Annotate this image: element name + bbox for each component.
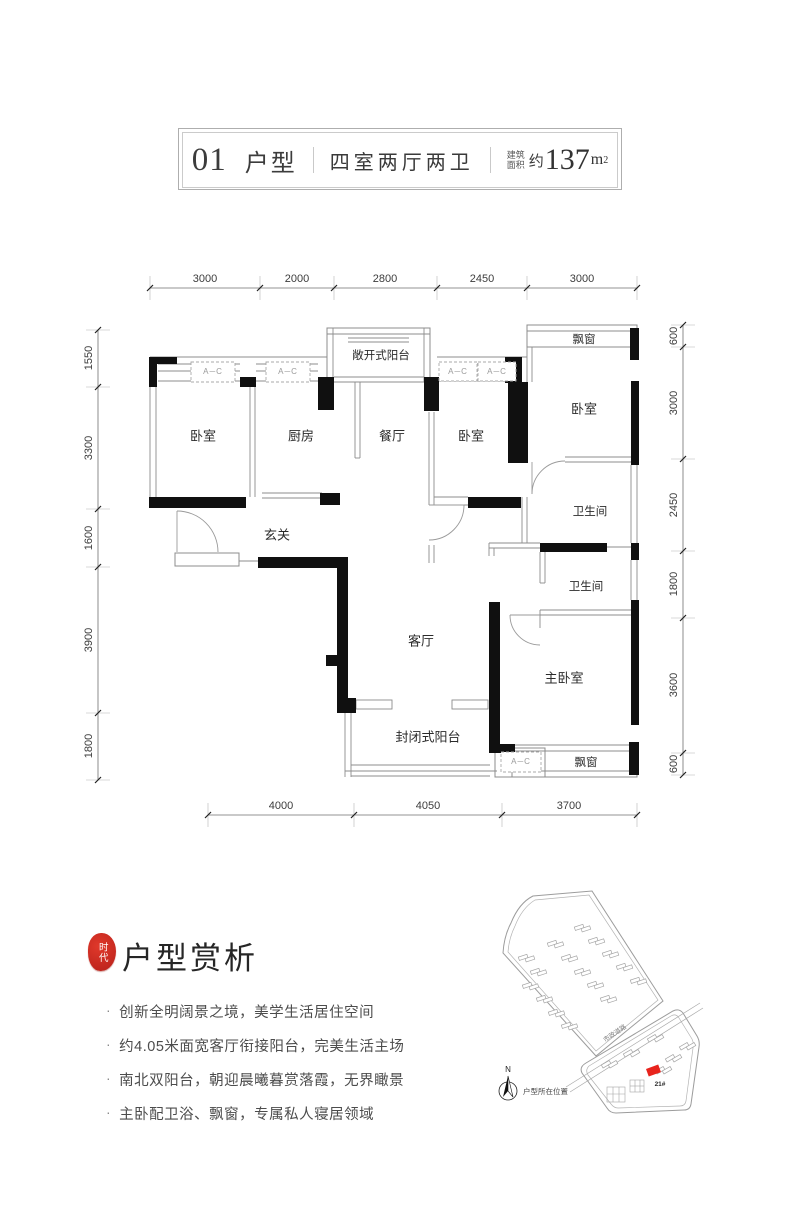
analysis-title: 户型赏析 [122, 933, 258, 978]
label-bay-window-bottom: 飘窗 [575, 755, 598, 769]
dim-top-2: 2000 [285, 273, 309, 285]
dim-bottom-3: 3700 [557, 800, 581, 812]
room-label-bedroom-2: 卧室 [458, 428, 484, 443]
room-label-living: 客厅 [408, 633, 434, 648]
building-footprint [588, 936, 604, 947]
site-map: 市政道路 21# N 户型所在位置 [478, 878, 722, 1128]
area-label: 建筑 面积 [507, 150, 525, 171]
bullet-dot: · [106, 1035, 111, 1053]
unit-label: 户型 [245, 143, 297, 178]
ac-label: A─C [511, 757, 531, 766]
dim-bottom-2: 4050 [416, 800, 440, 812]
building-footprint [623, 1046, 639, 1060]
building-footprint [536, 994, 552, 1005]
title-divider [490, 147, 491, 173]
area-label-line2: 面积 [507, 160, 525, 170]
dim-left-2: 3300 [83, 436, 95, 460]
layout-type: 四室两厅两卫 [330, 146, 474, 175]
title-inner: 01 户型 四室两厅两卫 建筑 面积 约 137 m 2 [182, 132, 618, 188]
building-footprint [665, 1051, 681, 1065]
dim-left-4: 3900 [83, 628, 95, 652]
room-label-bath-2: 卫生间 [569, 579, 604, 593]
analysis-bullets: · 创新全明阔景之境，美学生活居住空间 · 约4.05米面宽客厅衔接阳台，完美生… [106, 1001, 486, 1137]
ac-label: A─C [278, 367, 298, 376]
bullet-dot: · [106, 1069, 111, 1087]
compass-icon: N 户型所在位置 [499, 1065, 568, 1100]
dim-right-1: 600 [668, 327, 680, 345]
building-footprint [518, 953, 534, 964]
dim-right-4: 1800 [668, 572, 680, 596]
dim-left-5: 1800 [83, 734, 95, 758]
bullet-item: · 南北双阳台，朝迎晨曦暮赏落霞，无界瞰景 [106, 1069, 486, 1090]
bullet-dot: · [106, 1001, 111, 1019]
dim-top-4: 2450 [470, 273, 494, 285]
dim-bottom-1: 4000 [269, 800, 293, 812]
highlight-building-shape [646, 1065, 661, 1077]
building-footprint [630, 976, 646, 987]
dim-right-3: 2450 [668, 493, 680, 517]
ac-label: A─C [487, 367, 507, 376]
building-footprint [530, 967, 546, 978]
seal-text: 时代 [97, 942, 107, 963]
floor-plan: 3000 2000 2800 2450 3000 1550 3300 1600 … [70, 228, 730, 828]
room-label-master: 主卧室 [544, 670, 583, 685]
area-unit: m [591, 151, 603, 169]
area-sup: 2 [603, 155, 608, 166]
ac-boxes: A─C A─C A─C A─C A─C [191, 362, 541, 772]
bullet-item: · 主卧配卫浴、飘窗，专属私人寝居领域 [106, 1103, 486, 1124]
unit-number: 01 [192, 142, 227, 179]
dim-right-6: 600 [668, 755, 680, 773]
building-footprint [547, 939, 563, 950]
area-approx: 约 [529, 150, 544, 171]
building-number: 21# [655, 1081, 666, 1088]
area-number: 137 [545, 143, 590, 177]
building-footprint [574, 967, 590, 978]
bullet-item: · 创新全明阔景之境，美学生活居住空间 [106, 1001, 486, 1022]
label-bay-window-top: 飘窗 [573, 332, 596, 346]
area-group: 建筑 面积 约 137 m 2 [507, 143, 608, 177]
building-footprint [587, 980, 603, 991]
ac-label: A─C [203, 367, 223, 376]
label-open-balcony: 敞开式阳台 [352, 348, 410, 362]
room-label-bedroom-1: 卧室 [190, 428, 216, 443]
bullet-text: 创新全明阔景之境，美学生活居住空间 [119, 1001, 374, 1022]
area-label-line1: 建筑 [507, 150, 525, 160]
buildings-layer [518, 923, 696, 1078]
bullet-text: 主卧配卫浴、飘窗，专属私人寝居领域 [119, 1103, 374, 1124]
room-label-bath-1: 卫生间 [573, 504, 608, 518]
room-label-bedroom-3: 卧室 [571, 401, 597, 416]
building-footprint [548, 1008, 564, 1019]
bullet-dot: · [106, 1103, 111, 1121]
building-footprint [679, 1039, 695, 1053]
dim-top-5: 3000 [570, 273, 594, 285]
building-footprint [647, 1031, 663, 1045]
dim-top-1: 3000 [193, 273, 217, 285]
location-caption: 户型所在位置 [523, 1086, 568, 1096]
building-footprint [600, 994, 616, 1005]
compass-n: N [505, 1065, 511, 1074]
dim-right-2: 3000 [668, 391, 680, 415]
building-footprint [602, 949, 618, 960]
label-closed-balcony: 封闭式阳台 [395, 729, 460, 744]
room-label-kitchen: 厨房 [288, 428, 314, 443]
dim-right-5: 3600 [668, 673, 680, 697]
bullet-item: · 约4.05米面宽客厅衔接阳台，完美生活主场 [106, 1035, 486, 1056]
building-footprint [561, 1021, 577, 1032]
room-label-entry: 玄关 [264, 527, 290, 542]
parcels [503, 891, 699, 1113]
black-walls [149, 328, 639, 775]
title-box: 01 户型 四室两厅两卫 建筑 面积 约 137 m 2 [178, 128, 622, 190]
dim-left-3: 1600 [83, 526, 95, 550]
building-footprint [561, 953, 577, 964]
ac-label: A─C [448, 367, 468, 376]
bullet-text: 南北双阳台，朝迎晨曦暮赏落霞，无界瞰景 [119, 1069, 404, 1090]
room-label-dining: 餐厅 [379, 428, 405, 443]
building-footprint [616, 962, 632, 973]
bullet-text: 约4.05米面宽客厅衔接阳台，完美生活主场 [119, 1035, 404, 1056]
commercial-blocks [607, 1080, 644, 1102]
title-divider [313, 147, 314, 173]
building-footprint [574, 923, 590, 934]
red-seal: 时代 [88, 933, 116, 971]
dim-left-1: 1550 [83, 346, 95, 370]
dim-top-3: 2800 [373, 273, 397, 285]
